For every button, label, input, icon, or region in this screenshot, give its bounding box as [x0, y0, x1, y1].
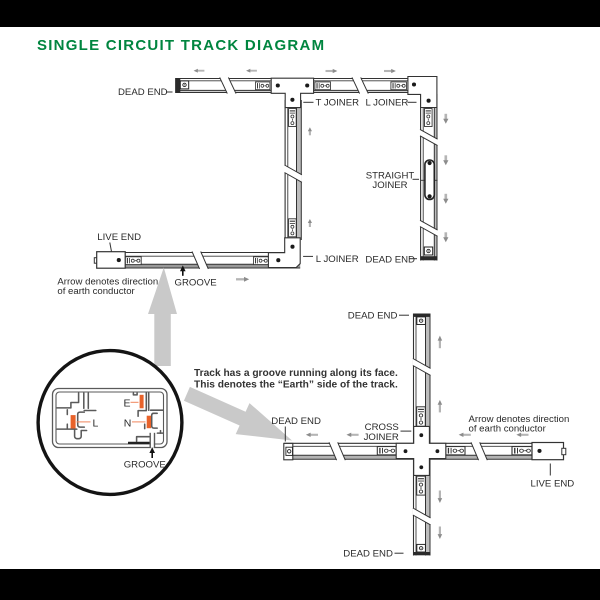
- svg-text:L JOINER: L JOINER: [366, 97, 409, 108]
- svg-text:Track has a groove running alo: Track has a groove running along its fac…: [194, 368, 398, 379]
- svg-text:GROOVE: GROOVE: [124, 459, 166, 470]
- svg-text:GROOVE: GROOVE: [175, 277, 217, 288]
- svg-text:of earth conductor: of earth conductor: [469, 424, 547, 435]
- svg-text:L JOINER: L JOINER: [316, 254, 359, 265]
- svg-text:E: E: [124, 398, 131, 410]
- svg-text:This denotes the “Earth” side: This denotes the “Earth” side of the tra…: [194, 380, 398, 391]
- svg-text:JOINER: JOINER: [372, 180, 407, 191]
- svg-text:JOINER: JOINER: [364, 432, 399, 443]
- svg-text:DEAD END: DEAD END: [348, 311, 398, 322]
- svg-text:DEAD END: DEAD END: [365, 254, 415, 265]
- svg-text:L: L: [93, 417, 99, 429]
- svg-text:of earth conductor: of earth conductor: [57, 286, 135, 297]
- svg-text:LIVE END: LIVE END: [97, 232, 141, 243]
- svg-text:DEAD END: DEAD END: [271, 416, 321, 427]
- svg-text:DEAD END: DEAD END: [343, 549, 393, 560]
- svg-text:T JOINER: T JOINER: [316, 97, 360, 108]
- svg-text:DEAD END: DEAD END: [118, 87, 168, 98]
- svg-text:LIVE END: LIVE END: [531, 479, 575, 490]
- svg-text:N: N: [124, 417, 132, 429]
